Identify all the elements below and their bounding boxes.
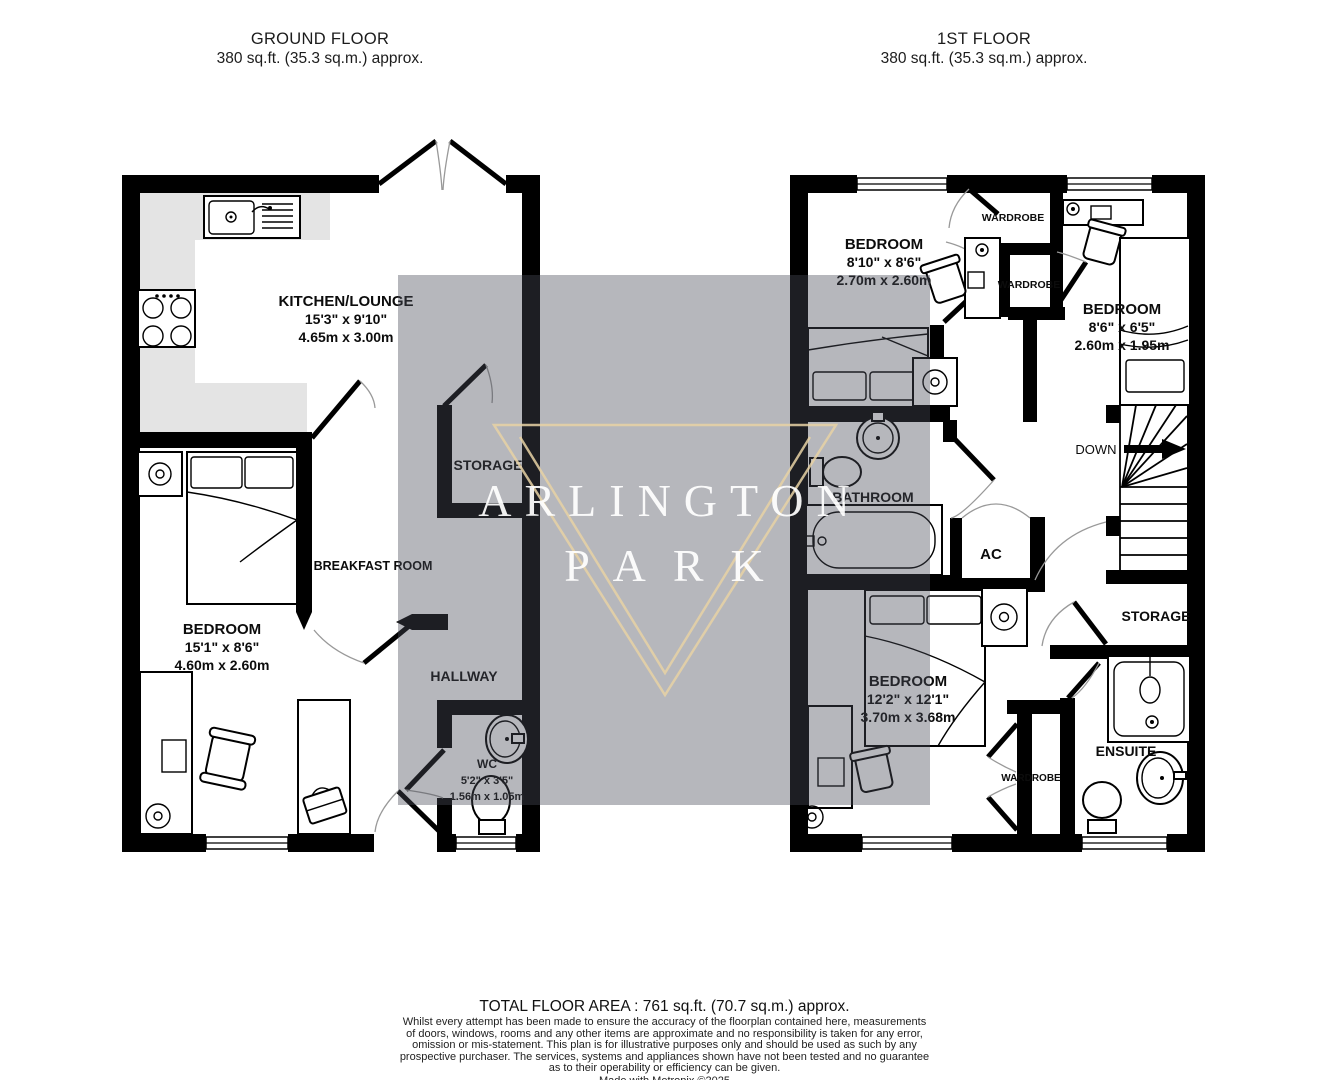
- label-wc: WC: [477, 757, 497, 771]
- label-kitchen-lounge: KITCHEN/LOUNGE: [279, 293, 414, 310]
- down-arrow: [1124, 439, 1186, 459]
- label-ground-bedroom-imperial: 15'1" x 8'6": [185, 639, 259, 655]
- label-bedroom2-metric: 2.60m x 1.95m: [1075, 337, 1170, 353]
- label-bedroom3: BEDROOM: [869, 673, 947, 690]
- label-kitchen-imperial: 15'3" x 9'10": [305, 311, 387, 327]
- first-floor-plan: BEDROOM 8'10" x 8'6" 2.70m x 2.60m WARDR…: [790, 175, 1205, 852]
- french-doors: [379, 141, 506, 190]
- floorplan-page: GROUND FLOOR 380 sq.ft. (35.3 sq.m.) app…: [0, 0, 1329, 1080]
- label-bedroom1-imperial: 8'10" x 8'6": [847, 254, 921, 270]
- label-ensuite: ENSUITE: [1096, 743, 1157, 759]
- kitchen-sink: [204, 196, 300, 238]
- label-bedroom3-imperial: 12'2" x 12'1": [867, 691, 949, 707]
- label-bedroom1-metric: 2.70m x 2.60m: [837, 272, 932, 288]
- label-wc-imperial: 5'2" x 3'5": [461, 775, 513, 787]
- floorplan-drawing: KITCHEN/LOUNGE 15'3" x 9'10" 4.65m x 3.0…: [0, 0, 1329, 1080]
- label-ground-storage: STORAGE: [454, 457, 523, 473]
- label-bedroom2: BEDROOM: [1083, 301, 1161, 318]
- label-down: DOWN: [1075, 442, 1116, 457]
- label-bedroom2-imperial: 8'6" x 6'5": [1089, 319, 1156, 335]
- label-wc-metric: 1.56m x 1.05m: [450, 791, 525, 803]
- label-ground-bedroom-metric: 4.60m x 2.60m: [175, 657, 270, 673]
- label-wardrobe-bottom: WARDROBE: [1001, 773, 1061, 784]
- stairs: [1120, 405, 1187, 570]
- label-wardrobe-top: WARDROBE: [982, 212, 1044, 224]
- label-kitchen-metric: 4.65m x 3.00m: [299, 329, 394, 345]
- hob: [138, 290, 195, 347]
- label-ground-bedroom: BEDROOM: [183, 621, 261, 638]
- label-wardrobe-mid: WARDROBE: [998, 279, 1060, 291]
- label-breakfast-room: BREAKFAST ROOM: [314, 559, 433, 573]
- ground-floor-plan: KITCHEN/LOUNGE 15'3" x 9'10" 4.65m x 3.0…: [122, 141, 540, 852]
- label-bathroom: BATHROOM: [832, 489, 913, 505]
- label-ac: AC: [980, 546, 1002, 563]
- label-bedroom1: BEDROOM: [845, 236, 923, 253]
- label-hallway: HALLWAY: [430, 668, 498, 684]
- label-bedroom3-metric: 3.70m x 3.68m: [861, 709, 956, 725]
- label-first-storage: STORAGE: [1122, 608, 1191, 624]
- bedroom3-furniture: [801, 588, 1027, 828]
